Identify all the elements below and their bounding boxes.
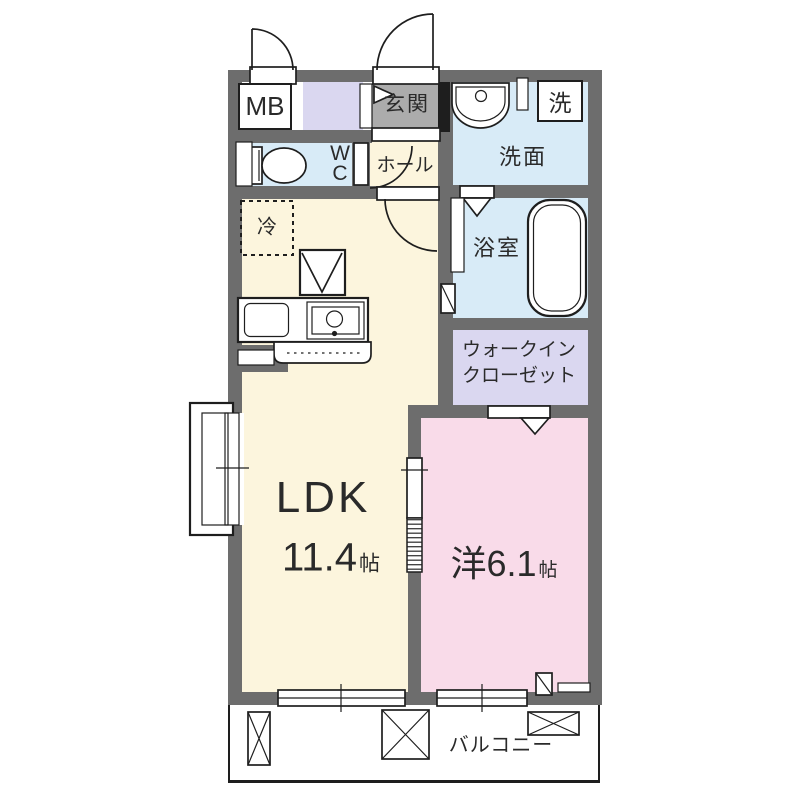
wall-closet-bedroom (408, 405, 602, 418)
wall-right (588, 70, 602, 705)
wall-kitchen-stub (228, 345, 288, 372)
utility-shaft-area (303, 82, 363, 132)
washing-machine-label: 洗 (549, 84, 572, 118)
wall-ldk-wet (438, 82, 453, 418)
washing-machine-space: 洗 (537, 80, 583, 122)
wall-ldk-bedroom (408, 405, 421, 692)
ldk-label: LDK (276, 475, 371, 521)
ldk-size: 11.4 帖 (282, 536, 380, 581)
wall-hall-ldk (228, 186, 453, 199)
bathroom-label: 浴室 (473, 236, 521, 259)
entrance-label: 玄関 (384, 94, 430, 116)
floor-plan-page: MB 洗 玄関 洗面 W C ホール 浴室 冷 ウォークイン クローゼット LD… (0, 0, 800, 800)
washroom-label: 洗面 (499, 145, 547, 168)
wall-wc-hall (352, 143, 370, 186)
wall-under-mb (242, 130, 372, 143)
bedroom-size-unit: 帖 (539, 555, 558, 582)
ldk-size-value: 11.4 (282, 536, 357, 581)
bedroom-size: 洋6.1 帖 (450, 535, 557, 587)
wall-bath-closet (440, 318, 602, 330)
wall-left (228, 70, 242, 705)
meter-box-label: MB (246, 91, 285, 122)
meter-box: MB (238, 83, 292, 130)
wall-bottom (228, 692, 602, 705)
hall-label: ホール (376, 156, 433, 176)
balcony-label: バルコニー (449, 736, 554, 757)
entry-door-frame-column (438, 82, 450, 132)
ldk-size-unit: 帖 (359, 548, 380, 578)
refrigerator-label: 冷 (257, 218, 277, 239)
walk-in-closet-label: ウォークイン クローゼット (462, 337, 576, 388)
toilet-label: W C (330, 144, 350, 184)
wall-washroom-bath (440, 185, 602, 198)
bedroom-label: 洋6.1 (450, 535, 536, 587)
